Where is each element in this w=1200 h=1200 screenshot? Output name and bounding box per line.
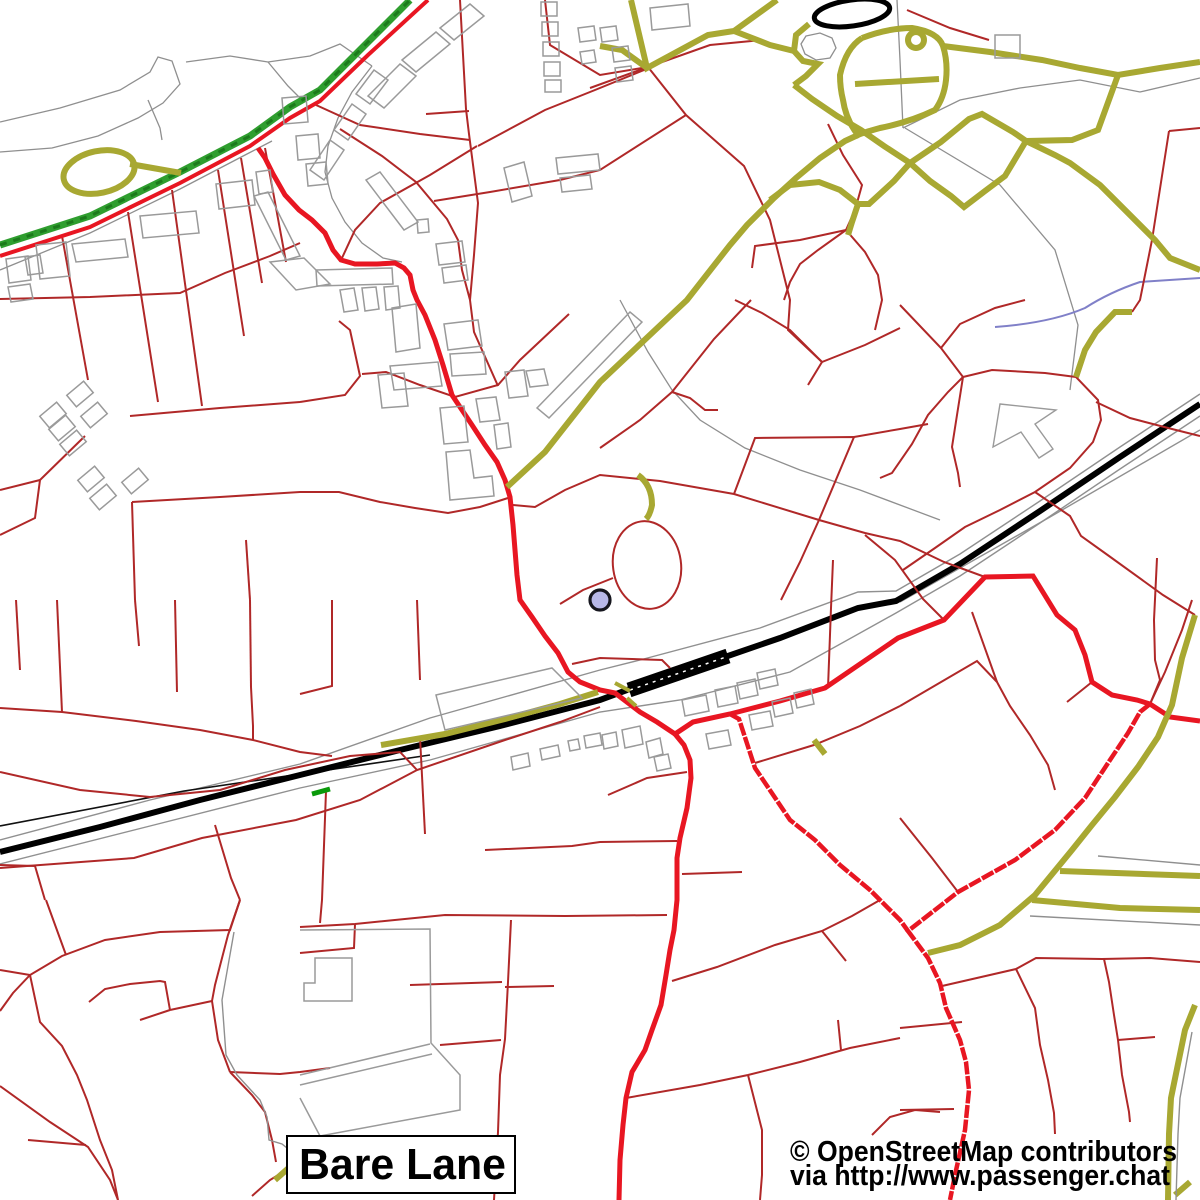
svg-text:Bare Lane: Bare Lane: [299, 1140, 506, 1189]
svg-text:via http://www.passenger.chat: via http://www.passenger.chat: [790, 1160, 1170, 1192]
